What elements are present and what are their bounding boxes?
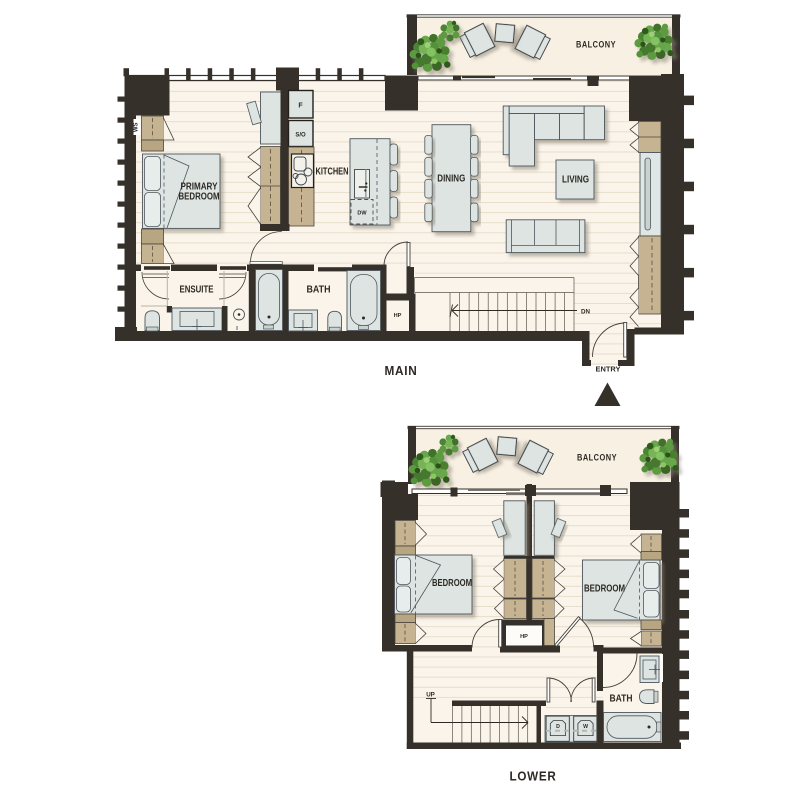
svg-text:BALCONY: BALCONY — [576, 40, 616, 51]
svg-text:BALCONY: BALCONY — [577, 453, 617, 464]
svg-text:KITCHEN: KITCHEN — [316, 166, 349, 178]
svg-text:BEDROOM: BEDROOM — [432, 578, 472, 589]
svg-text:ENTRY: ENTRY — [596, 367, 621, 374]
svg-text:UP: UP — [426, 692, 435, 699]
svg-text:HP: HP — [394, 313, 402, 319]
svg-text:BATH: BATH — [610, 694, 633, 705]
svg-text:D: D — [556, 724, 560, 730]
svg-text:DINING: DINING — [437, 174, 465, 185]
svg-text:F: F — [298, 103, 303, 110]
svg-text:BATH: BATH — [307, 285, 331, 296]
svg-text:DW: DW — [357, 211, 367, 217]
svg-text:S/O: S/O — [295, 133, 306, 139]
svg-text:ENSUITE: ENSUITE — [180, 284, 214, 296]
svg-text:BEDROOM: BEDROOM — [584, 584, 625, 595]
svg-text:LIVING: LIVING — [562, 175, 589, 186]
svg-text:LOWER: LOWER — [510, 769, 557, 784]
svg-text:HP: HP — [520, 634, 528, 640]
svg-text:DN: DN — [581, 309, 590, 316]
svg-text:WS: WS — [134, 122, 140, 132]
svg-text:MAIN: MAIN — [385, 363, 418, 378]
svg-text:W: W — [583, 724, 588, 730]
svg-text:BEDROOM: BEDROOM — [179, 191, 220, 203]
